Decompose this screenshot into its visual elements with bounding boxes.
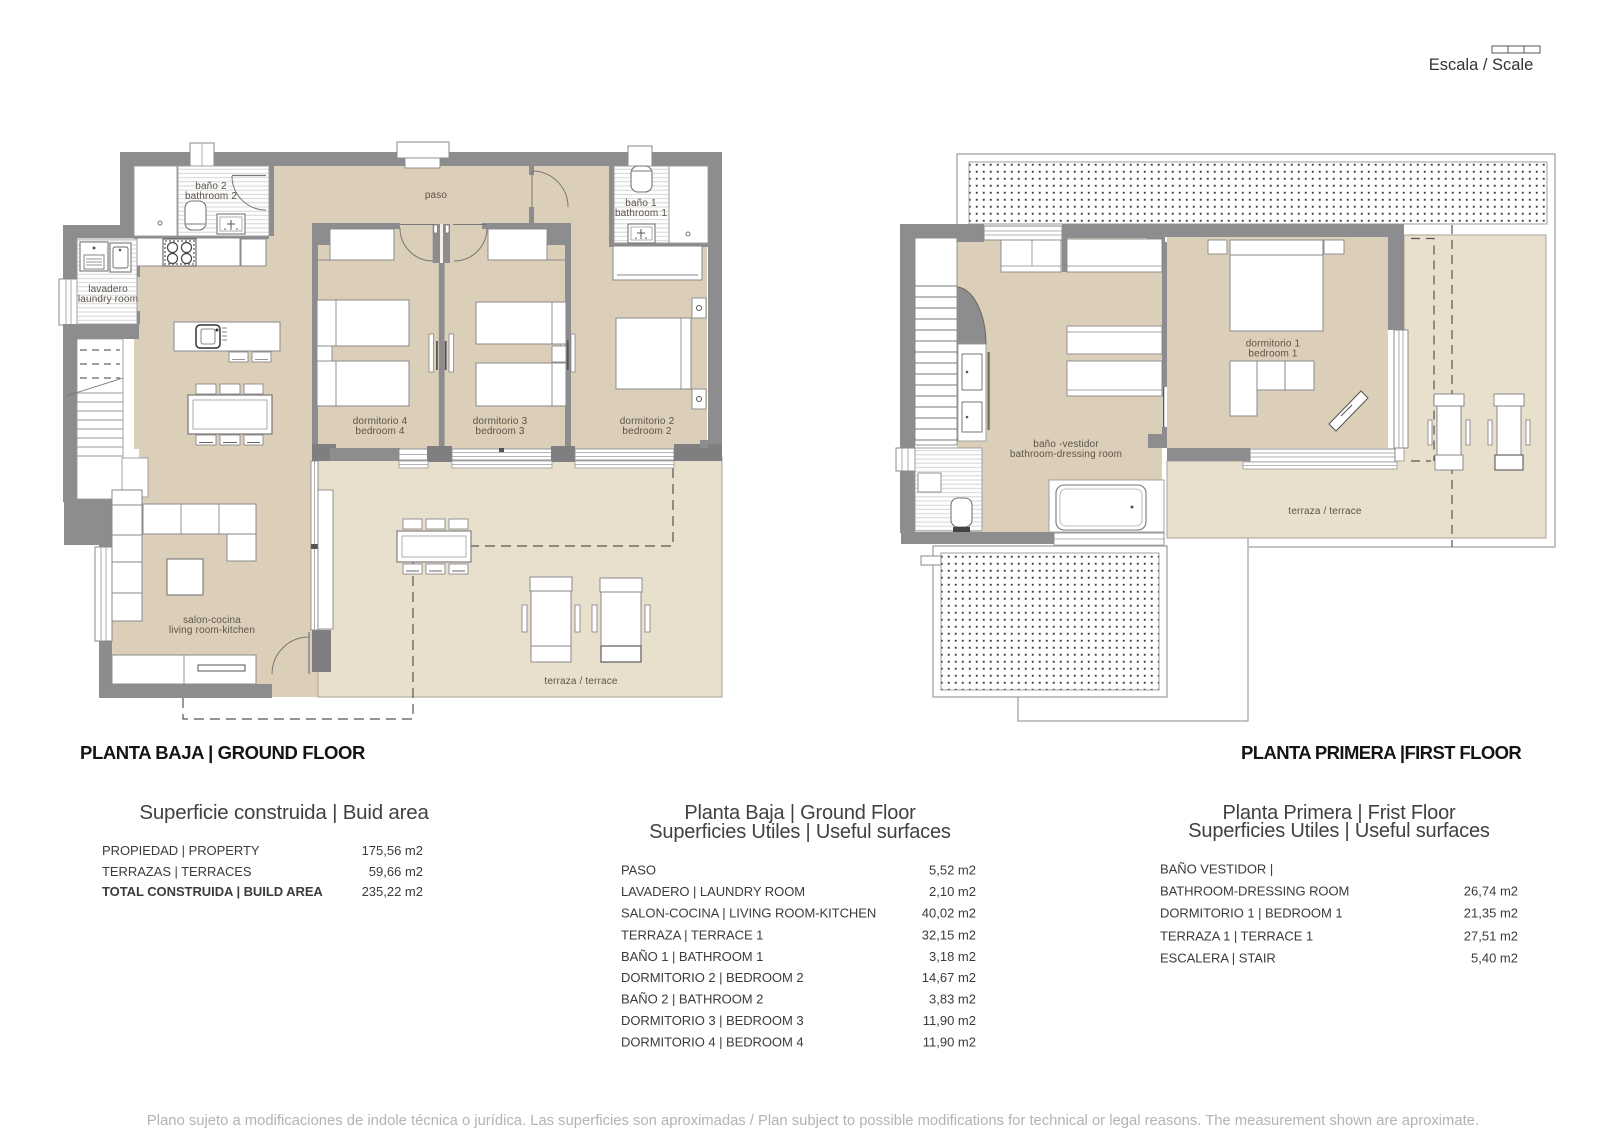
svg-text:26,74 m2: 26,74 m2 (1464, 884, 1518, 899)
svg-text:DORMITORIO 4 | BEDROOM 4: DORMITORIO 4 | BEDROOM 4 (621, 1035, 804, 1050)
svg-text:14,67 m2: 14,67 m2 (922, 970, 976, 985)
svg-text:3,18 m2: 3,18 m2 (929, 949, 976, 964)
svg-text:bathroom 1: bathroom 1 (615, 208, 667, 219)
svg-text:TOTAL CONSTRUIDA | BUILD AREA: TOTAL CONSTRUIDA | BUILD AREA (102, 884, 323, 899)
svg-text:LAVADERO | LAUNDRY ROOM: LAVADERO | LAUNDRY ROOM (621, 884, 805, 899)
svg-text:terraza / terrace: terraza / terrace (1288, 506, 1361, 517)
svg-text:TERRAZA | TERRACE 1: TERRAZA | TERRACE 1 (621, 928, 763, 943)
svg-text:5,40 m2: 5,40 m2 (1471, 951, 1518, 966)
svg-text:BAÑO 2 | BATHROOM 2: BAÑO 2 | BATHROOM 2 (621, 992, 763, 1007)
svg-text:TERRAZA 1 | TERRACE 1: TERRAZA 1 | TERRACE 1 (1160, 929, 1313, 944)
svg-text:3,83 m2: 3,83 m2 (929, 992, 976, 1007)
svg-text:11,90 m2: 11,90 m2 (923, 1035, 976, 1050)
svg-text:BAÑO VESTIDOR |: BAÑO VESTIDOR | (1160, 862, 1273, 877)
svg-text:2,10 m2: 2,10 m2 (929, 884, 976, 899)
svg-text:bathroom-dressing room: bathroom-dressing room (1010, 449, 1122, 460)
svg-text:235,22 m2: 235,22 m2 (362, 884, 423, 899)
svg-text:27,51 m2: 27,51 m2 (1464, 929, 1518, 944)
svg-text:Superficies Utiles | Useful su: Superficies Utiles | Useful surfaces (1188, 820, 1490, 842)
svg-text:terraza / terrace: terraza / terrace (544, 676, 617, 687)
svg-text:PLANTA PRIMERA |FIRST FLOOR: PLANTA PRIMERA |FIRST FLOOR (1241, 742, 1521, 763)
svg-text:bedroom 3: bedroom 3 (475, 426, 524, 437)
svg-text:bedroom 2: bedroom 2 (622, 426, 671, 437)
svg-text:21,35 m2: 21,35 m2 (1464, 906, 1518, 921)
svg-text:Plano sujeto a modificaciones: Plano sujeto a modificaciones de indole … (147, 1113, 1479, 1129)
svg-text:40,02 m2: 40,02 m2 (922, 906, 976, 921)
svg-text:11,90 m2: 11,90 m2 (923, 1013, 976, 1028)
svg-text:bedroom 1: bedroom 1 (1248, 349, 1297, 360)
svg-text:DORMITORIO 2 | BEDROOM 2: DORMITORIO 2 | BEDROOM 2 (621, 970, 804, 985)
svg-text:TERRAZAS | TERRACES: TERRAZAS | TERRACES (102, 864, 252, 879)
svg-text:Escala / Scale: Escala / Scale (1429, 56, 1534, 74)
svg-text:living room-kitchen: living room-kitchen (169, 625, 255, 636)
svg-text:PASO: PASO (621, 863, 656, 878)
svg-text:bathroom 2: bathroom 2 (185, 191, 237, 202)
svg-text:32,15 m2: 32,15 m2 (922, 928, 976, 943)
svg-text:175,56 m2: 175,56 m2 (362, 843, 423, 858)
svg-text:5,52 m2: 5,52 m2 (929, 863, 976, 878)
svg-text:59,66 m2: 59,66 m2 (369, 864, 423, 879)
svg-text:PLANTA BAJA | GROUND FLOOR: PLANTA BAJA | GROUND FLOOR (80, 742, 365, 763)
svg-text:laundry room: laundry room (78, 294, 138, 305)
svg-text:Superficies Utiles | Useful su: Superficies Utiles | Useful surfaces (649, 821, 951, 843)
svg-text:bedroom 4: bedroom 4 (355, 426, 404, 437)
svg-text:DORMITORIO 1 | BEDROOM 1: DORMITORIO 1 | BEDROOM 1 (1160, 906, 1343, 921)
svg-text:SALON-COCINA | LIVING ROOM-KIT: SALON-COCINA | LIVING ROOM-KITCHEN (621, 906, 876, 921)
svg-text:BATHROOM-DRESSING ROOM: BATHROOM-DRESSING ROOM (1160, 884, 1349, 899)
svg-text:ESCALERA | STAIR: ESCALERA | STAIR (1160, 951, 1276, 966)
svg-text:PROPIEDAD | PROPERTY: PROPIEDAD | PROPERTY (102, 843, 260, 858)
svg-text:Superficie construida | Buid a: Superficie construida | Buid area (139, 801, 429, 824)
svg-text:paso: paso (425, 190, 448, 201)
svg-text:BAÑO 1 | BATHROOM 1: BAÑO 1 | BATHROOM 1 (621, 949, 763, 964)
svg-text:DORMITORIO 3 | BEDROOM 3: DORMITORIO 3 | BEDROOM 3 (621, 1013, 804, 1028)
